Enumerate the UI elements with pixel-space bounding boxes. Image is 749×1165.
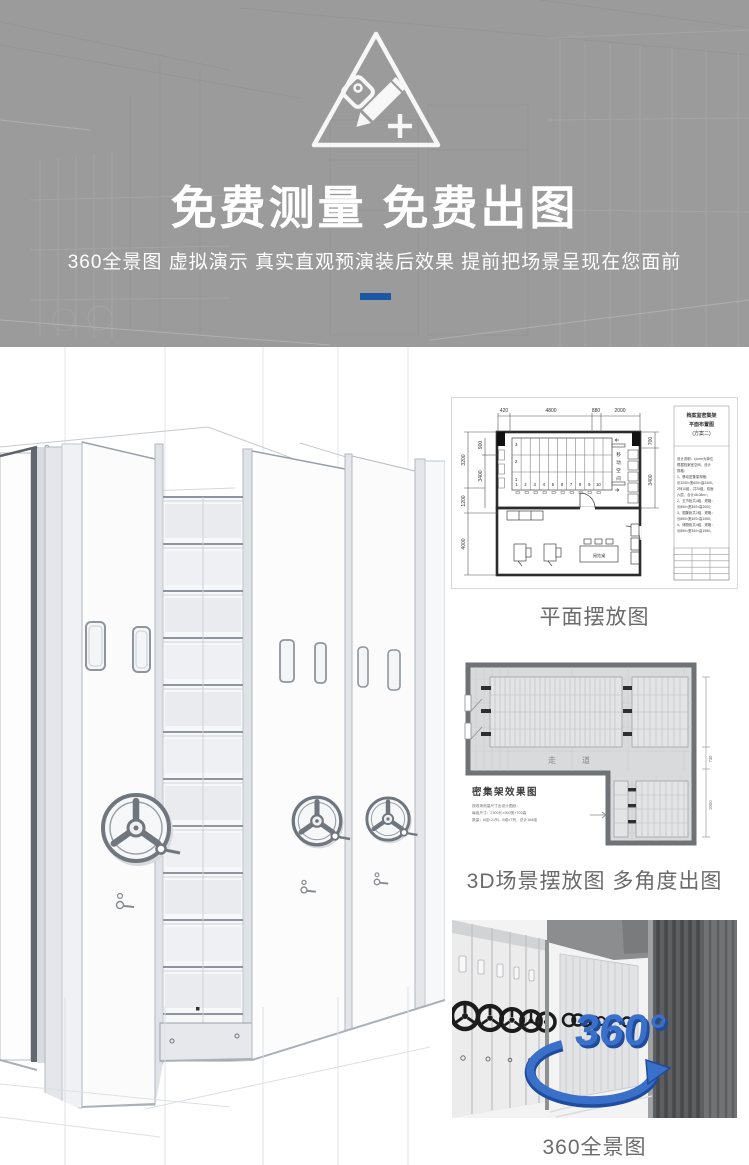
dim-label: 4000 [461,538,467,549]
spec-line: 按现场测量尺寸出设计图纸： [472,803,520,808]
content-section: 420 4800 880 2000 3200 1200 4000 900 [0,347,749,1165]
dim-label: 420 [500,408,509,414]
panorama-caption: 360全景图 [452,1131,737,1161]
moving-space-label: 空 [616,467,621,473]
dim-label: 3200 [461,454,467,465]
dim-label: 1200 [461,495,467,506]
dim-label: 4800 [545,408,556,414]
banner-title: 免费测量 免费出图 [0,183,749,233]
dim-label: 900 [478,441,484,450]
plan-note: 长850×宽400×高1950； [677,516,713,521]
plan-note: 根据档案室空间，设计 [677,462,712,467]
dim-label: 2000 [614,408,625,414]
spec-line: 每组尺寸：2300长×900宽×700高 [472,810,527,815]
plan-note: 2列10组，共20组，双面 [677,486,714,491]
panorama-figure: 360° 360° 360全景图 [452,920,737,1161]
plan-note: 4、储物柜共4组，规格： [677,522,715,527]
promo-banner: 免费测量 免费出图 360全景图 虚拟演示 真实直观预演装后效果 提前把场景呈现… [0,0,749,347]
title-block-line: 平面布置图 [689,421,714,428]
reading-table-label: 阅览桌 [593,552,606,559]
floor-plan-figure: 420 4800 880 2000 3200 1200 4000 900 [452,398,737,631]
dim-label: 3400 [648,474,654,485]
dim-label: 700 [648,437,654,446]
logo-360-text: 360° [573,1006,669,1055]
moving-space-label: 动 [616,459,621,466]
plan-note: 1、移动密集架规格： [677,474,709,479]
plan-note: 六层，合计46.08m²； [677,492,710,497]
plan-note: 3、图集柜共2组，规格： [677,510,715,515]
scene-3d-drawing: 走道 密集架效果图 按现场测量尺寸出设计图纸： 每组尺寸：2300长×900宽×… [452,655,737,852]
floor-plan-caption: 平面摆放图 [452,601,737,631]
aisle-label: 走道 [548,755,616,765]
title-block-line: 档案室密集架 [686,412,716,419]
drawing-title: 密集架效果图 [471,786,538,798]
plan-note: 长850×宽300×高1950。 [677,528,713,533]
accent-dash [360,293,391,300]
plan-note: 长3200×宽600×高2400； [677,480,715,485]
plan-note: 规格： [677,468,687,473]
scene-3d-figure: 走道 密集架效果图 按现场测量尺寸出设计图纸： 每组尺寸：2300长×900宽×… [452,655,737,895]
title-block-line: (方案二) [692,430,711,437]
measure-draw-triangle-icon [308,28,444,152]
scene-3d-caption: 3D场景摆放图 多角度出图 [452,865,737,895]
dim-label: 3400 [478,470,484,481]
floor-plan-drawing: 420 4800 880 2000 3200 1200 4000 900 [452,398,737,588]
moving-space-label: 间 [616,475,621,482]
promo-page: 免费测量 免费出图 360全景图 虚拟演示 真实直观预演装后效果 提前把场景呈现… [0,0,749,1165]
banner-subtitle: 360全景图 虚拟演示 真实直观预演装后效果 提前把场景呈现在您面前 [0,251,749,275]
moving-space-label: 移 [616,451,621,458]
dim-label: 2000 [708,800,713,810]
panorama-render: 360° 360° [452,920,737,1118]
plan-note: 长850×宽300×高2000； [677,504,713,509]
dim-label: 880 [592,408,601,414]
mobile-shelving-sketch [0,347,445,1165]
plan-note: 设计说明：以mm为单位 [677,456,714,461]
column-number: 10 [596,482,601,487]
spec-line: 数量：6组×21列，6组×7列，总计168组 [472,817,537,822]
dim-label: 730 [708,755,713,763]
plus-icon [388,114,412,138]
plan-note: 2、五节柜共4组，规格： [677,498,715,503]
